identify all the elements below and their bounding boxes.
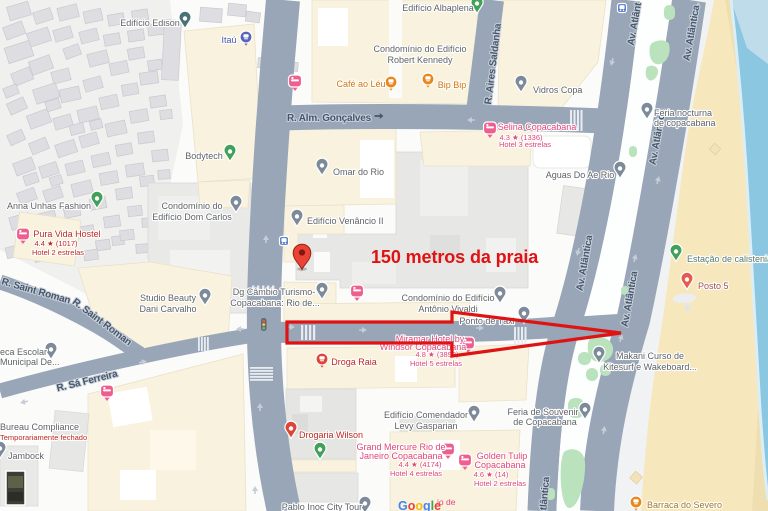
svg-text:Pura Vida Hostel: Pura Vida Hostel xyxy=(33,229,100,239)
svg-text:Edifício Venâncio II: Edifício Venâncio II xyxy=(307,216,384,226)
svg-text:Copacabana: Rio de...: Copacabana: Rio de... xyxy=(230,298,320,308)
svg-text:Omar do Rio: Omar do Rio xyxy=(333,167,384,177)
svg-text:eca Escolar: eca Escolar xyxy=(0,347,47,357)
svg-text:4.6 ★ (14): 4.6 ★ (14) xyxy=(474,470,509,479)
svg-text:Edifício Edison: Edifício Edison xyxy=(120,18,180,28)
svg-text:Pablo Inoc City Tour: Pablo Inoc City Tour xyxy=(282,502,362,511)
svg-text:Hotel 4 estrelas: Hotel 4 estrelas xyxy=(390,469,442,478)
svg-text:Café ao Léu: Café ao Léu xyxy=(336,79,385,89)
svg-text:Kitesurf e Wakeboard...: Kitesurf e Wakeboard... xyxy=(603,362,697,372)
svg-text:Drogaria Wilson: Drogaria Wilson xyxy=(299,430,363,440)
svg-text:Bodytech: Bodytech xyxy=(185,151,223,161)
svg-text:4.4 ★ (4174): 4.4 ★ (4174) xyxy=(399,460,442,469)
svg-text:Robert Kennedy: Robert Kennedy xyxy=(387,55,453,65)
svg-text:Condomínio do: Condomínio do xyxy=(161,201,222,211)
svg-text:Temporariamente fechado: Temporariamente fechado xyxy=(0,433,87,442)
svg-text:Makani Curso de: Makani Curso de xyxy=(616,351,684,361)
svg-text:Hotel 2 estrelas: Hotel 2 estrelas xyxy=(474,479,526,488)
svg-text:Edifício Albaplena: Edifício Albaplena xyxy=(402,3,474,13)
svg-text:io de: io de xyxy=(437,497,456,507)
svg-text:4.4 ★ (1017): 4.4 ★ (1017) xyxy=(35,239,78,248)
svg-text:Hotel 2 estrelas: Hotel 2 estrelas xyxy=(32,248,84,257)
svg-text:Condomínio do Edifício: Condomínio do Edifício xyxy=(401,293,494,303)
svg-text:Edifício Comendador: Edifício Comendador xyxy=(384,410,468,420)
svg-text:Estação de calistenia: Estação de calistenia xyxy=(687,254,768,264)
svg-text:Levy Gasparian: Levy Gasparian xyxy=(394,421,457,431)
svg-text:Bip Bip: Bip Bip xyxy=(438,80,467,90)
svg-text:Municipal De...: Municipal De... xyxy=(0,357,60,367)
svg-text:de Copacabana: de Copacabana xyxy=(513,417,577,427)
svg-text:R. Alm. Gonçalves: R. Alm. Gonçalves xyxy=(287,113,372,124)
svg-text:Bureau Compliance: Bureau Compliance xyxy=(0,422,79,432)
svg-text:Feria nocturna: Feria nocturna xyxy=(654,108,712,118)
svg-text:Posto 5: Posto 5 xyxy=(698,281,729,291)
svg-text:Anna Unhas Fashion: Anna Unhas Fashion xyxy=(7,201,91,211)
svg-text:Selina Copacabana: Selina Copacabana xyxy=(498,122,577,132)
svg-text:Edifício Dom Carlos: Edifício Dom Carlos xyxy=(152,212,232,222)
svg-text:Condomínio do Edifício: Condomínio do Edifício xyxy=(373,44,466,54)
svg-text:Aguas Do Ae Rio: Aguas Do Ae Rio xyxy=(546,170,615,180)
svg-text:Vidros Copa: Vidros Copa xyxy=(533,85,582,95)
svg-text:Itaú: Itaú xyxy=(221,35,236,45)
svg-text:Hotel 3 estrelas: Hotel 3 estrelas xyxy=(499,140,551,149)
svg-text:Droga Raia: Droga Raia xyxy=(331,357,377,367)
svg-text:de copacabana: de copacabana xyxy=(654,118,716,128)
svg-text:Barraca do Severo: Barraca do Severo xyxy=(647,500,722,510)
svg-text:Jambock: Jambock xyxy=(8,451,45,461)
svg-text:Feria de Souvenir: Feria de Souvenir xyxy=(507,407,578,417)
svg-text:Google: Google xyxy=(398,499,441,511)
svg-text:Dg Câmbio Turismo-: Dg Câmbio Turismo- xyxy=(233,287,316,297)
svg-text:Copacabana: Copacabana xyxy=(474,460,525,470)
svg-text:Studio Beauty: Studio Beauty xyxy=(140,293,197,303)
svg-text:Hotel 5 estrelas: Hotel 5 estrelas xyxy=(410,359,462,368)
svg-text:150 metros da praia: 150 metros da praia xyxy=(371,247,539,267)
svg-text:madas: madas xyxy=(2,505,22,511)
svg-text:Dani Carvalho: Dani Carvalho xyxy=(139,304,196,314)
